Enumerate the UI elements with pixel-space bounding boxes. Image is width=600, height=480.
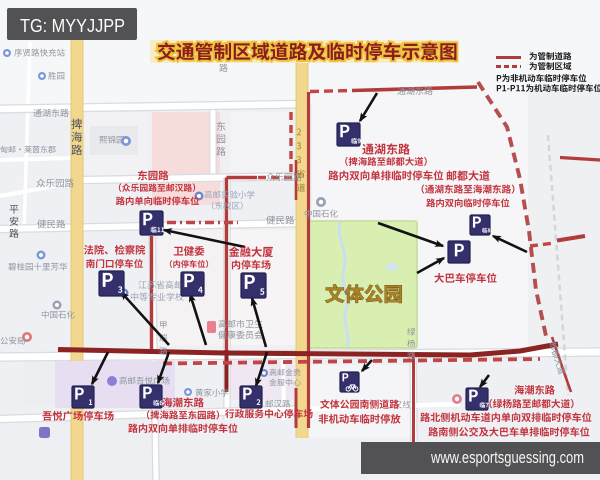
svg-text:TG: MYYJJPP: TG: MYYJJPP (20, 15, 125, 36)
svg-text:www.esportsguessing.com: www.esportsguessing.com (430, 449, 584, 467)
